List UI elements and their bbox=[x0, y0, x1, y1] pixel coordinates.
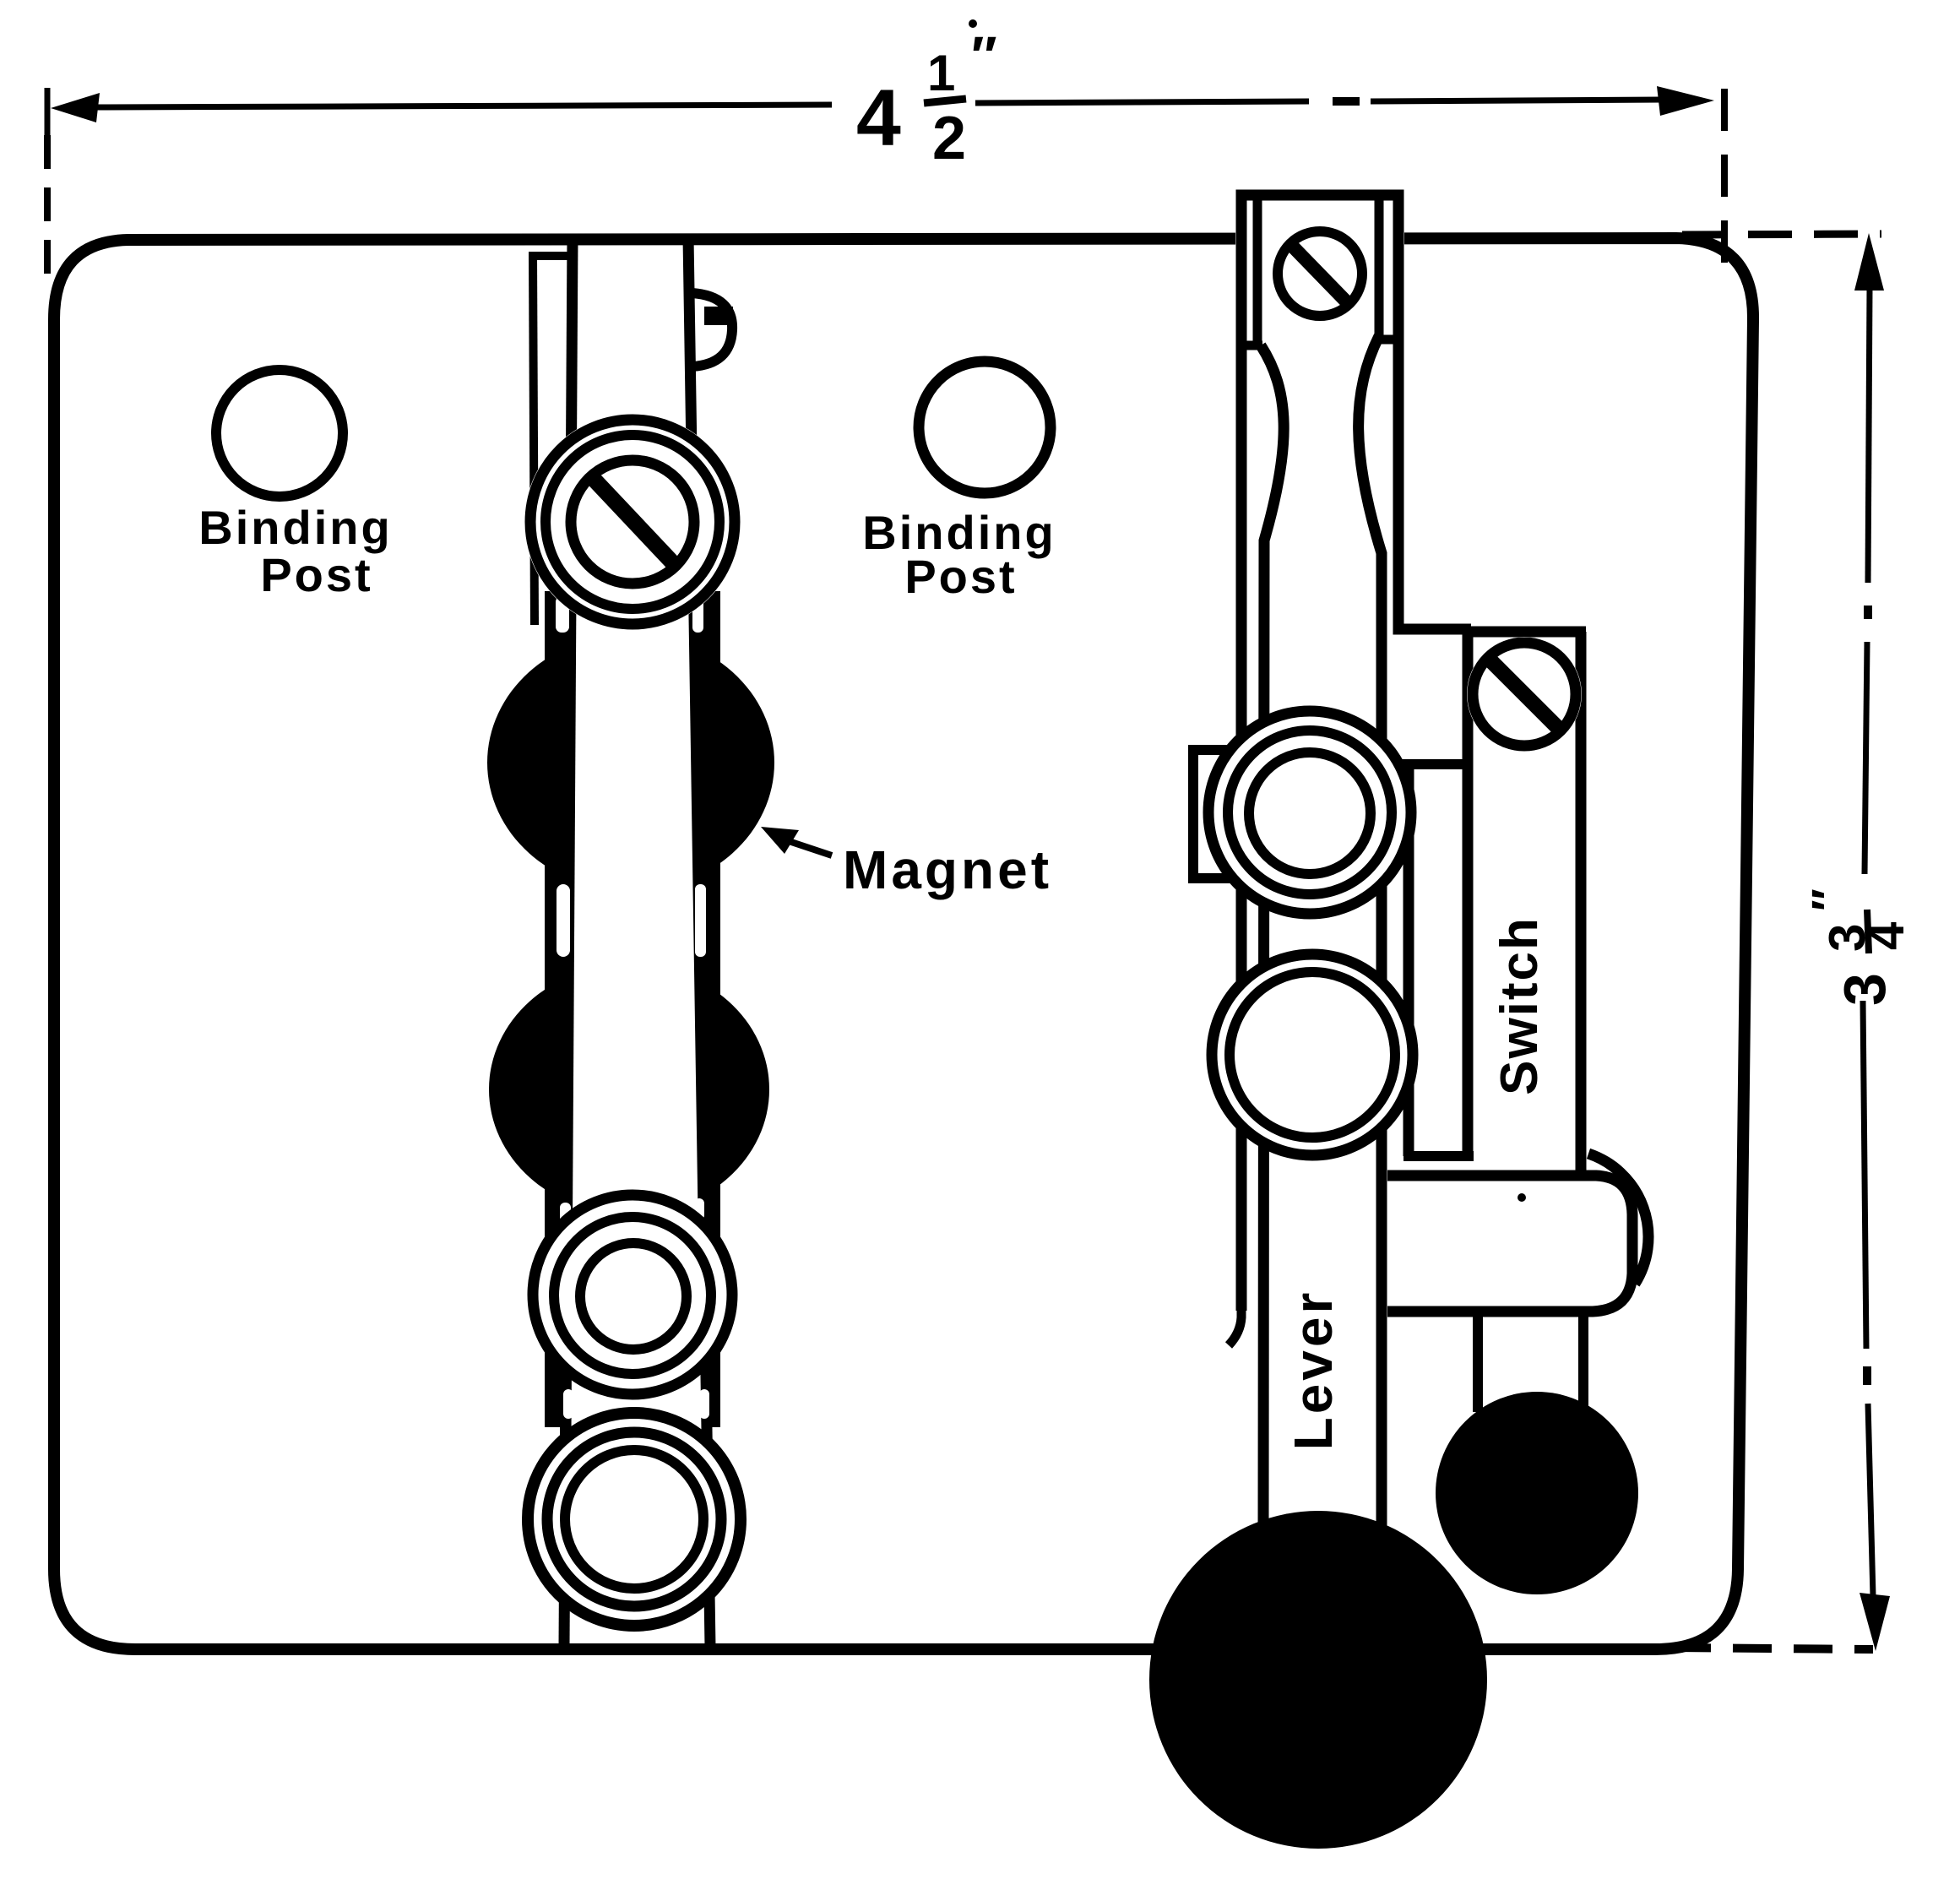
svg-text:″: ″ bbox=[971, 25, 997, 86]
svg-text:″: ″ bbox=[1801, 888, 1854, 911]
svg-text:3: 3 bbox=[1832, 973, 1898, 1006]
svg-text:Magnet: Magnet bbox=[843, 839, 1052, 900]
svg-text:1: 1 bbox=[927, 45, 955, 101]
svg-text:4: 4 bbox=[1858, 921, 1914, 950]
svg-text:4: 4 bbox=[856, 73, 901, 163]
svg-text:Binding: Binding bbox=[198, 501, 392, 554]
svg-text:Post: Post bbox=[904, 550, 1017, 603]
svg-text:2: 2 bbox=[932, 105, 966, 172]
svg-text:Lever: Lever bbox=[1283, 1290, 1344, 1451]
svg-text:Switch: Switch bbox=[1490, 916, 1549, 1095]
svg-text:Post: Post bbox=[260, 548, 372, 601]
